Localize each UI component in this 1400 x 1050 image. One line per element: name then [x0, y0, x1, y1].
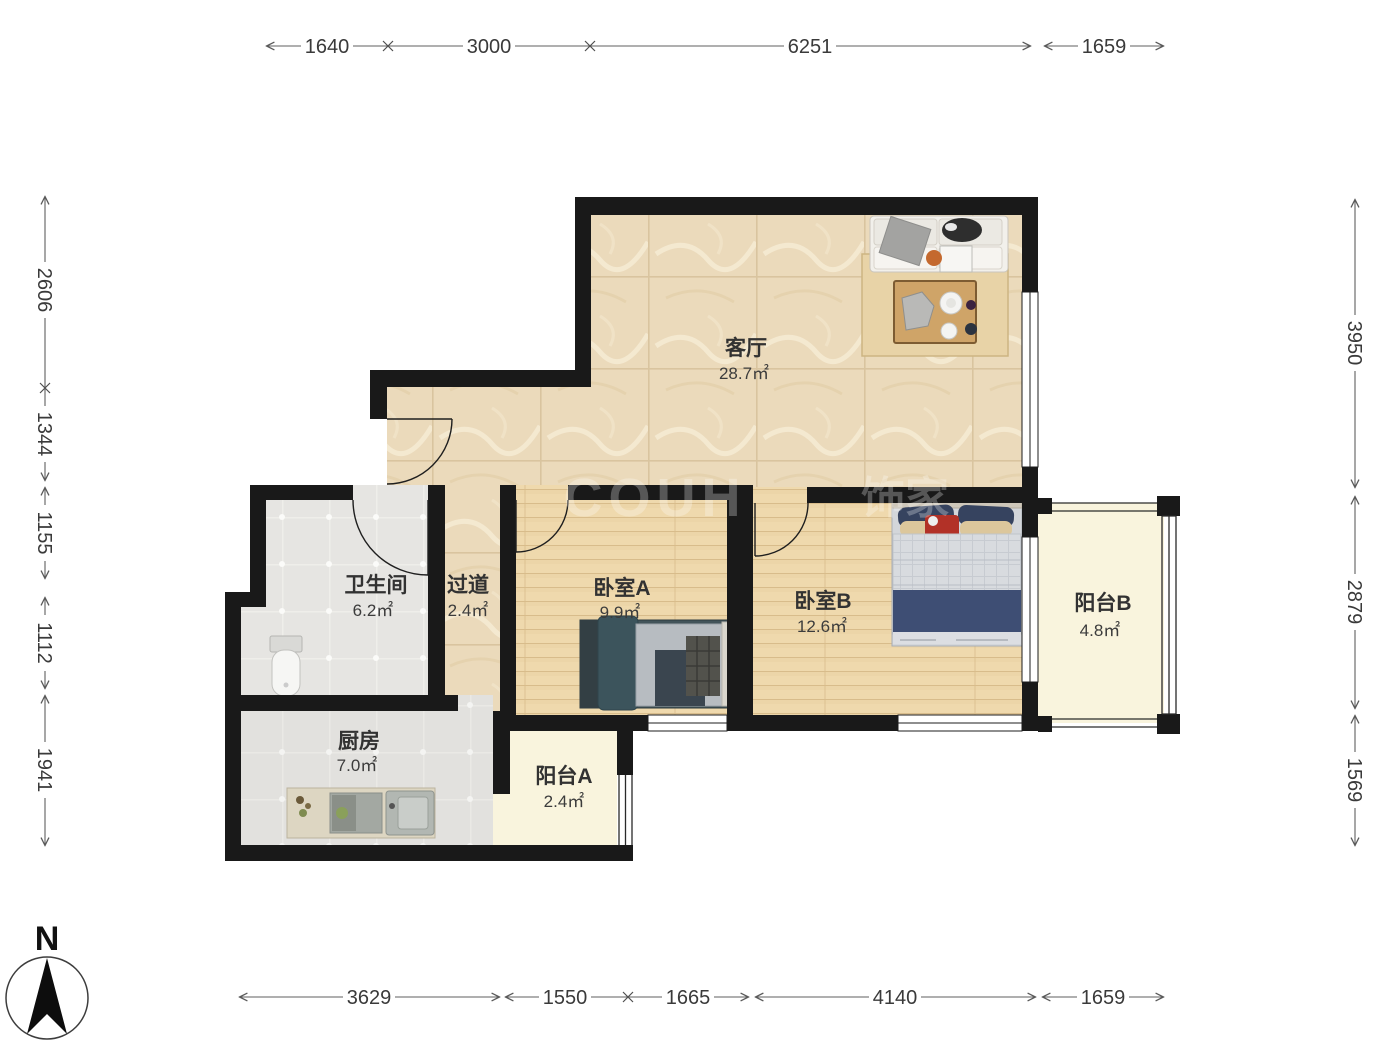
sofa-orange-item	[926, 250, 942, 266]
bathroom-floor-lower	[241, 597, 428, 711]
single-bed-a	[580, 616, 738, 710]
plate-small	[941, 323, 957, 339]
room-balcony-a-name: 阳台A	[535, 764, 592, 788]
room-bathroom-area: 6.2㎡	[353, 601, 394, 620]
dim-bottom-3: 4140	[873, 987, 918, 1009]
room-balcony-b-name: 阳台B	[1074, 591, 1131, 615]
sink-basin	[398, 797, 428, 829]
toilet	[270, 636, 302, 696]
balcony-a-east-rail	[619, 775, 632, 845]
dim-left-0: 2606	[33, 268, 55, 313]
sofa-tray	[940, 246, 972, 272]
bottle-2	[965, 323, 977, 335]
room-living-name: 客厅	[725, 336, 767, 360]
compass-label: N	[35, 920, 60, 958]
balcony-a-floor	[493, 731, 617, 845]
dim-right-1: 2879	[1343, 580, 1365, 625]
room-living-area: 28.7㎡	[719, 364, 769, 383]
dim-top-1: 3000	[467, 36, 512, 58]
room-balcony-a-area: 2.4㎡	[544, 792, 585, 811]
dim-left-2: 1155	[33, 511, 55, 554]
sofa	[870, 216, 1008, 272]
floor-plan-svg: COUH 饰家 客厅 28.7㎡ 卧室A 9.9㎡ 卧室B 12.6㎡ 卫生间 …	[0, 0, 1400, 1050]
dim-bottom-2: 1665	[666, 987, 711, 1009]
room-bedroom-a-area: 9.9㎡	[600, 603, 641, 622]
dim-right-2: 1569	[1343, 758, 1365, 803]
kitchen-counter	[287, 788, 435, 838]
living-room-window	[1022, 292, 1038, 467]
room-bedroom-b-area: 12.6㎡	[797, 617, 847, 636]
room-kitchen-area: 7.0㎡	[337, 756, 378, 775]
dim-left-3: 1112	[33, 622, 55, 664]
bedroom-b-east-window	[1022, 537, 1038, 682]
dim-top-0: 1640	[305, 36, 350, 58]
plate-inner	[946, 298, 956, 308]
watermark-latin: COUH	[564, 468, 747, 528]
compass-needle-icon	[27, 958, 67, 1034]
room-bathroom-name: 卫生间	[345, 573, 408, 597]
north-compass: N	[6, 920, 88, 1039]
bed-b-foot	[893, 632, 1021, 644]
dim-top-3: 1659	[1082, 36, 1127, 58]
room-bedroom-b-name: 卧室B	[794, 589, 851, 613]
counter-plant	[336, 807, 348, 819]
room-hallway-area: 2.4㎡	[448, 601, 489, 620]
dim-bottom-4: 1659	[1081, 987, 1126, 1009]
bedroom-b-south-window	[898, 715, 1022, 731]
bottle	[966, 300, 976, 310]
bed-a-pillow	[598, 616, 638, 710]
hallway-floor	[445, 483, 500, 715]
dim-bottom-0: 3629	[347, 987, 392, 1009]
dim-left-1: 1344	[33, 412, 55, 457]
room-balcony-b-area: 4.8㎡	[1080, 621, 1121, 640]
watermark-cn: 饰家	[861, 474, 949, 523]
dim-left-4: 1941	[33, 748, 55, 793]
bedroom-a-window	[648, 715, 727, 731]
room-kitchen-name: 厨房	[338, 729, 380, 753]
room-bedroom-a-name: 卧室A	[593, 576, 650, 600]
dim-top-2: 6251	[788, 36, 833, 58]
balcony-b-east-rail	[1162, 516, 1176, 714]
floor-plan-page: COUH 饰家 客厅 28.7㎡ 卧室A 9.9㎡ 卧室B 12.6㎡ 卫生间 …	[0, 0, 1400, 1050]
dim-bottom-1: 1550	[543, 987, 588, 1009]
room-hallway-name: 过道	[447, 573, 489, 597]
faucet	[389, 803, 395, 809]
bed-b-navy-blanket	[893, 590, 1021, 632]
dim-right-0: 3950	[1343, 321, 1365, 366]
